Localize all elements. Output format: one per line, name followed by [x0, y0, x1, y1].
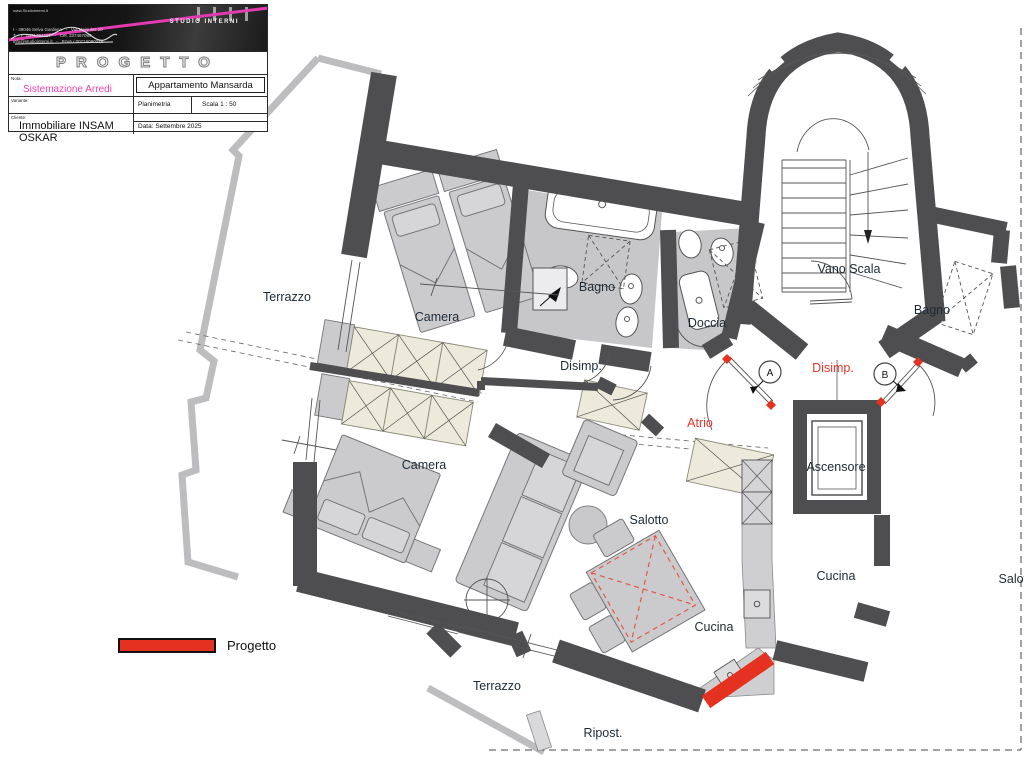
label-disimp-right: Disimp. [812, 361, 854, 375]
label-cucina-right: Cucina [817, 569, 856, 583]
nota-value: Sistemazione Arredi [23, 84, 112, 95]
label-salotto-right: Salotto [999, 572, 1024, 586]
project-title: PROGETTO [9, 52, 267, 75]
variante-label: Variante: [11, 98, 29, 103]
label-camera-top: Camera [415, 310, 460, 324]
signature-icon [9, 25, 119, 47]
scala-value: Scala 1 : 50 [202, 101, 236, 108]
door-a-label: A [767, 368, 774, 379]
studio-website: www.StudioInterni.it [13, 8, 48, 13]
label-bagno-top: Bagno [579, 280, 615, 294]
label-terrazzo-bottom: Terrazzo [473, 679, 521, 693]
data-value: Data: Settembre 2025 [138, 123, 202, 130]
cliente-value: Immobiliare INSAM OSKAR [19, 120, 133, 144]
studio-name: STUDIO INTERNI [170, 19, 239, 25]
drawing-sheet: A B Terrazzo Camera Bagno Doccia Disimp.… [0, 0, 1024, 758]
label-terrazzo-left: Terrazzo [263, 290, 311, 304]
title-block: www.StudioInterni.it I - 39046 Selva Gar… [8, 4, 268, 132]
stair-arrow [864, 230, 872, 244]
legend-red-swatch [118, 638, 216, 653]
label-vano-scala: Vano Scala [817, 262, 880, 276]
door-ref-b: B [874, 363, 906, 392]
studio-banner: www.StudioInterni.it I - 39046 Selva Gar… [9, 5, 267, 52]
label-doccia: Doccia [688, 316, 726, 330]
label-cucina-center: Cucina [695, 620, 734, 634]
variante-value: Planimetria [138, 101, 171, 108]
legend: Progetto [118, 638, 276, 653]
label-ripost: Ripost. [584, 726, 623, 740]
elevator [800, 360, 874, 507]
label-camera-bottom: Camera [402, 458, 447, 472]
apartment-box: Appartamento Mansarda [136, 77, 265, 93]
label-atrio: Atrio [687, 416, 713, 430]
label-salotto: Salotto [630, 513, 669, 527]
legend-label: Progetto [227, 638, 276, 653]
label-disimp-center: Disimp. [560, 359, 602, 373]
door-ref-a: A [750, 361, 781, 394]
door-b-label: B [882, 370, 889, 381]
label-bagno-right: Bagno [914, 303, 950, 317]
label-ascensore: Ascensore [806, 460, 865, 474]
nota-label: Nota: [11, 76, 22, 81]
